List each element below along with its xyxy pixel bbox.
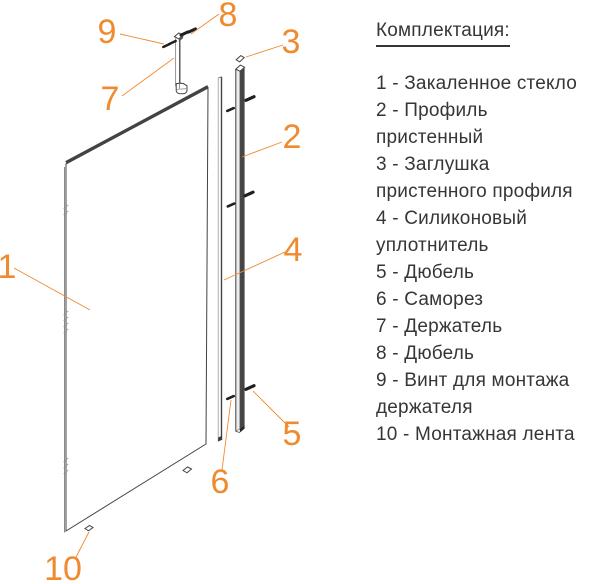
glass-panel — [64, 87, 208, 533]
callout-number-1: 1 — [0, 248, 16, 286]
legend-item-3: 3 - Заглушка пристенного профиля — [376, 151, 598, 205]
legend-item-5: 5 - Дюбель — [376, 259, 598, 286]
leader-line-3 — [246, 45, 283, 57]
callout-number-2: 2 — [283, 118, 302, 156]
wall-profile — [236, 65, 245, 433]
callout-number-8: 8 — [219, 0, 238, 34]
leader-line-8 — [191, 14, 219, 34]
callout-number-4: 4 — [284, 231, 303, 269]
legend-item-6: 6 - Саморез — [376, 286, 598, 313]
callout-number-9: 9 — [98, 13, 117, 51]
wall-dowels — [245, 97, 254, 390]
callout-number-10: 10 — [44, 550, 82, 584]
callout-number-3: 3 — [282, 23, 301, 61]
leader-line-9 — [120, 34, 164, 44]
leader-line-6 — [222, 400, 231, 470]
exploded-view-figure: 1 2 3 4 5 6 7 8 9 10 Комплектация: 1 - З… — [0, 0, 600, 584]
legend-title: Комплектация: — [376, 20, 510, 47]
legend-item-8: 8 - Дюбель — [376, 340, 598, 367]
callout-number-7: 7 — [101, 80, 120, 118]
silicone-seal-strip — [218, 77, 221, 442]
mounting-tape-clip — [183, 467, 192, 473]
leader-line-4 — [224, 252, 285, 280]
profile-end-cap — [236, 56, 244, 62]
callout-number-6: 6 — [211, 463, 230, 501]
legend-item-2: 2 - Профиль пристенный — [376, 97, 598, 151]
legend-item-10: 10 - Монтажная лента — [376, 421, 598, 448]
legend-item-7: 7 - Держатель — [376, 313, 598, 340]
leader-line-7 — [122, 58, 174, 96]
assembly-diagram: 1 2 3 4 5 6 7 8 9 10 — [0, 0, 370, 584]
legend-item-9: 9 - Винт для монтажа держателя — [376, 367, 598, 421]
mounting-tape-clip — [85, 526, 93, 531]
holder — [174, 33, 187, 94]
legend-item-4: 4 - Силиконовый уплотнитель — [376, 205, 598, 259]
legend-item-1: 1 - Закаленное стекло — [376, 70, 598, 97]
parts-legend: Комплектация: 1 - Закаленное стекло 2 - … — [376, 20, 598, 448]
profile-screws — [227, 108, 234, 399]
leader-line-2 — [242, 142, 282, 157]
callout-number-5: 5 — [283, 415, 302, 453]
holder-screws — [163, 41, 175, 47]
